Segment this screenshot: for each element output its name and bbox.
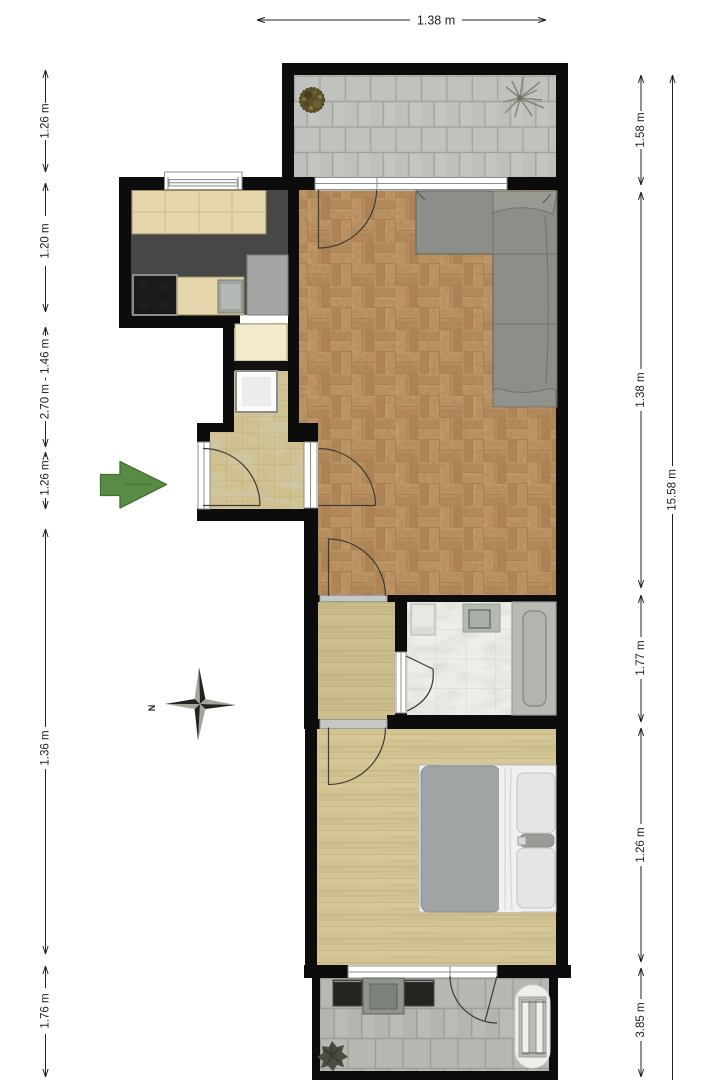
svg-text:1.26 m: 1.26 m xyxy=(40,103,52,138)
svg-text:1.77 m: 1.77 m xyxy=(635,640,647,675)
svg-text:1.36 m: 1.36 m xyxy=(40,730,52,765)
svg-text:1.26 m: 1.26 m xyxy=(40,460,52,495)
svg-text:3.85 m: 3.85 m xyxy=(635,1002,647,1037)
svg-text:1.38 m: 1.38 m xyxy=(635,372,647,407)
svg-text:1.20 m: 1.20 m xyxy=(40,223,52,258)
svg-text:1.38 m: 1.38 m xyxy=(417,14,455,28)
svg-text:2.70 m - 1.46 m: 2.70 m - 1.46 m xyxy=(40,339,52,420)
svg-text:1.58 m: 1.58 m xyxy=(635,112,647,147)
svg-text:N: N xyxy=(147,705,157,712)
svg-text:15.58 m: 15.58 m xyxy=(667,469,679,511)
svg-text:1.76 m: 1.76 m xyxy=(40,993,52,1028)
svg-text:1.26 m: 1.26 m xyxy=(635,827,647,862)
